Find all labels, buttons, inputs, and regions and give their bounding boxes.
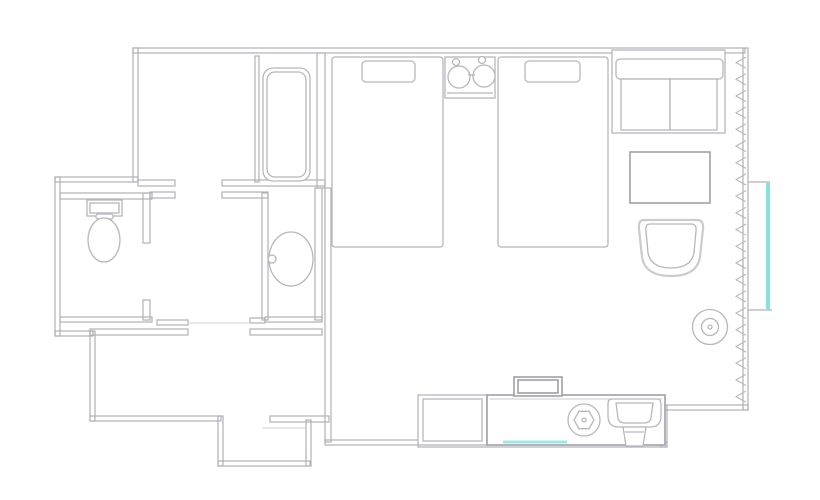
tv <box>514 377 562 396</box>
floor-plan <box>0 0 820 500</box>
curtain <box>736 57 746 402</box>
counter-cabinet <box>418 395 487 445</box>
coffee-table <box>630 152 710 203</box>
nightstand-lamps <box>445 57 495 99</box>
toilet <box>87 200 122 262</box>
armchair <box>639 220 703 276</box>
round-side-table <box>693 310 728 345</box>
bed-1 <box>332 57 443 247</box>
bed-2 <box>498 57 608 247</box>
window <box>748 182 772 310</box>
kettle <box>568 404 600 436</box>
canvas <box>0 0 820 500</box>
sofa <box>612 50 725 133</box>
washbasin <box>268 232 313 286</box>
bathtub <box>263 68 310 181</box>
door-openings <box>188 323 305 428</box>
